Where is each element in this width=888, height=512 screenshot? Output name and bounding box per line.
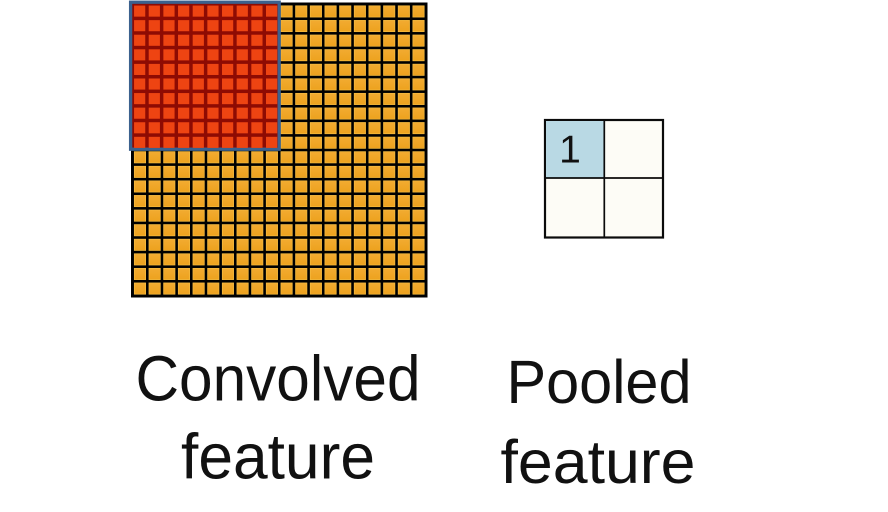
svg-text:feature: feature	[501, 428, 696, 496]
svg-text:Pooled: Pooled	[507, 348, 692, 416]
svg-text:1: 1	[559, 129, 581, 172]
svg-text:Convolved: Convolved	[136, 343, 421, 415]
svg-text:feature: feature	[181, 421, 375, 493]
